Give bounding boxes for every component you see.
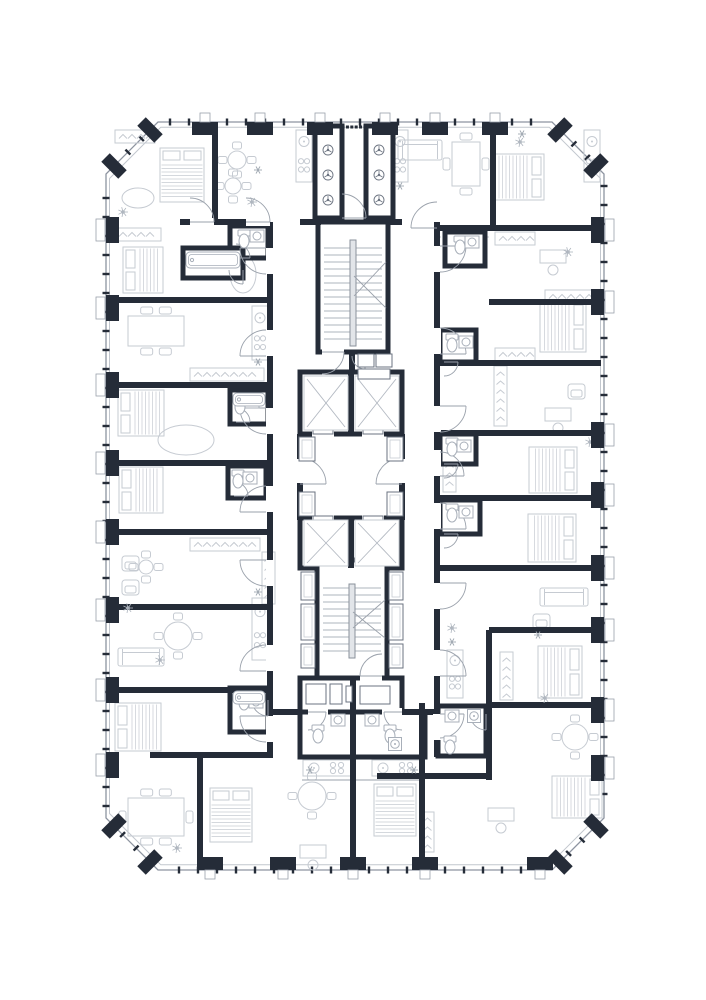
facade-column bbox=[106, 372, 119, 398]
bathtub-symbol bbox=[233, 393, 265, 406]
toilet-symbol bbox=[444, 736, 456, 754]
bed-symbol bbox=[552, 776, 602, 818]
polyline bbox=[119, 135, 127, 139]
facade-column bbox=[372, 122, 398, 135]
mullion-tick bbox=[601, 736, 608, 738]
mullion-tick bbox=[601, 470, 608, 472]
facade-column bbox=[591, 755, 604, 781]
rect bbox=[552, 776, 602, 818]
facade-column bbox=[340, 857, 366, 870]
mullion-tick bbox=[416, 119, 418, 126]
mullion-tick bbox=[601, 204, 608, 206]
balcony-fin bbox=[605, 557, 614, 579]
shaft-riser bbox=[301, 572, 315, 600]
bed-symbol bbox=[540, 302, 586, 352]
mullion-tick bbox=[103, 292, 110, 294]
door-opening bbox=[433, 714, 441, 740]
facade-column bbox=[106, 752, 119, 778]
utility-panel bbox=[346, 686, 352, 702]
rect bbox=[374, 784, 416, 836]
mullion-tick bbox=[368, 867, 370, 874]
balcony-fin bbox=[96, 297, 105, 319]
balcony-fin bbox=[420, 870, 430, 879]
mullion-tick bbox=[103, 254, 110, 256]
door-opening bbox=[433, 583, 441, 609]
mullion-tick bbox=[601, 413, 608, 415]
bed-symbol bbox=[123, 247, 163, 293]
utility-panel bbox=[330, 684, 342, 704]
balcony-fin bbox=[200, 113, 210, 122]
balcony-fin bbox=[535, 870, 545, 879]
elevator-car bbox=[304, 520, 348, 566]
mullion-tick bbox=[283, 119, 285, 126]
mullion-tick bbox=[520, 867, 522, 874]
mullion-tick bbox=[103, 577, 110, 579]
mullion-tick bbox=[463, 867, 465, 874]
door-opening bbox=[360, 674, 382, 682]
mullion-tick bbox=[601, 660, 608, 662]
balcony-fin bbox=[605, 699, 614, 721]
rect bbox=[118, 390, 164, 436]
door-opening bbox=[266, 486, 274, 512]
mullion-tick bbox=[473, 119, 475, 126]
mullion-tick bbox=[601, 394, 608, 396]
elevator-car bbox=[355, 376, 399, 430]
facade-column bbox=[591, 422, 604, 448]
balcony-fin bbox=[490, 113, 500, 122]
facade-column bbox=[591, 697, 604, 723]
ellipse bbox=[239, 234, 249, 248]
circle bbox=[399, 140, 401, 142]
door-opening bbox=[266, 330, 274, 356]
elevator-car bbox=[355, 520, 399, 566]
rect bbox=[123, 247, 163, 293]
stair-rail bbox=[349, 584, 355, 658]
mullion-tick bbox=[601, 337, 608, 339]
bed-symbol bbox=[119, 467, 163, 513]
facade-column bbox=[197, 857, 223, 870]
balcony-fin bbox=[255, 113, 265, 122]
facade-column bbox=[106, 519, 119, 545]
rect bbox=[301, 572, 315, 600]
ellipse bbox=[313, 729, 323, 743]
rect bbox=[389, 644, 403, 668]
mullion-tick bbox=[511, 119, 513, 126]
balcony-fin bbox=[96, 521, 105, 543]
rect bbox=[540, 302, 586, 352]
sink-symbol bbox=[465, 236, 479, 248]
circle bbox=[259, 317, 261, 319]
bed-symbol bbox=[160, 148, 204, 202]
door-opening bbox=[266, 408, 274, 434]
balcony-fin bbox=[96, 679, 105, 701]
mullion-tick bbox=[103, 273, 110, 275]
balcony-fin bbox=[278, 870, 288, 879]
mullion-tick bbox=[601, 451, 608, 453]
ellipse bbox=[445, 740, 455, 754]
rect bbox=[301, 604, 315, 640]
mullion-tick bbox=[235, 867, 237, 874]
mullion-tick bbox=[103, 672, 110, 674]
facade-column bbox=[106, 450, 119, 476]
mullion-tick bbox=[103, 349, 110, 351]
polyline bbox=[128, 135, 136, 139]
mullion-tick bbox=[359, 119, 361, 126]
circle bbox=[259, 611, 261, 613]
facade-column bbox=[591, 482, 604, 508]
toilet-symbol bbox=[446, 334, 458, 352]
mullion-tick bbox=[103, 368, 110, 370]
utility-panel bbox=[376, 354, 392, 367]
ellipse bbox=[455, 240, 465, 254]
wall-enclosure bbox=[366, 126, 393, 218]
wall-enclosure bbox=[315, 126, 342, 218]
door-opening bbox=[433, 503, 441, 529]
balcony-fin bbox=[430, 113, 440, 122]
rect bbox=[299, 492, 315, 516]
mullion-tick bbox=[245, 119, 247, 126]
facade-column bbox=[591, 617, 604, 643]
facade-column bbox=[106, 597, 119, 623]
mullion-tick bbox=[103, 197, 110, 199]
ellipse bbox=[233, 474, 243, 488]
mullion-tick bbox=[601, 679, 608, 681]
mullion-tick bbox=[601, 508, 608, 510]
rect bbox=[494, 154, 544, 200]
rect bbox=[119, 467, 163, 513]
mullion-tick bbox=[601, 527, 608, 529]
mullion-tick bbox=[226, 119, 228, 126]
rect bbox=[160, 148, 204, 202]
floor-plan-canvas bbox=[0, 0, 706, 1000]
door-opening bbox=[433, 328, 441, 354]
stair-rail bbox=[350, 240, 356, 346]
mullion-tick bbox=[601, 261, 608, 263]
facade-column bbox=[270, 857, 296, 870]
facade-column bbox=[307, 122, 333, 135]
mullion-tick bbox=[103, 805, 110, 807]
floor-plan-page bbox=[0, 0, 706, 1000]
mullion-tick bbox=[601, 356, 608, 358]
shaft-riser bbox=[389, 572, 403, 600]
sink-symbol bbox=[459, 336, 473, 348]
balcony-fin bbox=[605, 757, 614, 779]
sink-symbol bbox=[365, 714, 379, 726]
mullion-tick bbox=[330, 867, 332, 874]
mullion-tick bbox=[601, 584, 608, 586]
mullion-tick bbox=[103, 425, 110, 427]
louver-dot bbox=[346, 126, 349, 129]
rect bbox=[538, 646, 582, 698]
facade-column bbox=[482, 122, 508, 135]
toilet-symbol bbox=[446, 438, 458, 456]
door-opening bbox=[433, 450, 441, 476]
bed-symbol bbox=[118, 390, 164, 436]
mullion-tick bbox=[601, 280, 608, 282]
door-opening bbox=[266, 716, 274, 742]
door-opening bbox=[433, 650, 441, 676]
rect bbox=[387, 492, 403, 516]
shaft-riser bbox=[299, 437, 315, 461]
mullion-tick bbox=[103, 444, 110, 446]
sink-symbol bbox=[243, 472, 257, 484]
shaft-riser bbox=[299, 492, 315, 516]
mullion-tick bbox=[482, 867, 484, 874]
mullion-tick bbox=[103, 406, 110, 408]
bed-symbol bbox=[529, 447, 577, 493]
mullion-tick bbox=[103, 786, 110, 788]
bathtub-symbol bbox=[233, 691, 265, 704]
toilet-symbol bbox=[312, 725, 324, 743]
mullion-tick bbox=[254, 867, 256, 874]
mullion-tick bbox=[169, 119, 171, 126]
utility-panel bbox=[358, 369, 390, 379]
mullion-tick bbox=[601, 375, 608, 377]
mullion-tick bbox=[387, 867, 389, 874]
mullion-tick bbox=[103, 501, 110, 503]
toilet-symbol bbox=[454, 236, 466, 254]
facade-column bbox=[106, 217, 119, 243]
mullion-tick bbox=[178, 867, 180, 874]
rect bbox=[387, 437, 403, 461]
shaft-riser bbox=[389, 644, 403, 668]
circle bbox=[394, 743, 396, 745]
ellipse bbox=[447, 338, 457, 352]
mullion-tick bbox=[601, 546, 608, 548]
rect bbox=[301, 644, 315, 668]
mullion-tick bbox=[188, 119, 190, 126]
louver-dot bbox=[350, 126, 353, 129]
ellipse bbox=[447, 442, 457, 456]
facade-column bbox=[106, 295, 119, 321]
ellipse bbox=[447, 508, 457, 522]
utility-panel bbox=[358, 354, 374, 367]
mullion-tick bbox=[103, 748, 110, 750]
mullion-tick bbox=[601, 185, 608, 187]
circle bbox=[382, 767, 384, 769]
mullion-tick bbox=[103, 482, 110, 484]
circle bbox=[454, 660, 456, 662]
sink-symbol bbox=[331, 714, 345, 726]
mullion-tick bbox=[530, 119, 532, 126]
facade-column bbox=[247, 122, 273, 135]
mullion-tick bbox=[103, 710, 110, 712]
balcony-fin bbox=[605, 484, 614, 506]
sink-symbol bbox=[457, 440, 471, 452]
facade-column bbox=[591, 555, 604, 581]
facade-column bbox=[106, 677, 119, 703]
facade-column bbox=[422, 122, 448, 135]
louver-dot bbox=[359, 126, 362, 129]
bed-symbol bbox=[494, 154, 544, 200]
toilet-symbol bbox=[446, 504, 458, 522]
balcony-fin bbox=[380, 113, 390, 122]
mullion-tick bbox=[103, 330, 110, 332]
facade-column bbox=[591, 217, 604, 243]
toilet-symbol bbox=[238, 230, 250, 248]
bed-symbol bbox=[538, 646, 582, 698]
mullion-tick bbox=[406, 867, 408, 874]
louver-dot bbox=[355, 126, 358, 129]
door-opening bbox=[433, 406, 441, 432]
circle bbox=[591, 140, 593, 142]
shaft-riser bbox=[389, 604, 403, 640]
balcony-fin bbox=[96, 754, 105, 776]
door-opening bbox=[433, 246, 441, 272]
bathtub-symbol bbox=[186, 252, 240, 268]
facade-column bbox=[591, 289, 604, 315]
balcony-fin bbox=[348, 870, 358, 879]
sink-symbol bbox=[445, 710, 459, 722]
balcony-fin bbox=[96, 599, 105, 621]
circle bbox=[313, 767, 315, 769]
utility-panel bbox=[360, 686, 390, 704]
bed-symbol bbox=[374, 784, 416, 836]
balcony-fin bbox=[605, 219, 614, 241]
bed-symbol bbox=[210, 788, 252, 842]
facade-column bbox=[192, 122, 218, 135]
door-opening bbox=[266, 248, 274, 274]
rect bbox=[389, 572, 403, 600]
door-opening bbox=[266, 560, 274, 586]
rect bbox=[389, 604, 403, 640]
balcony-fin bbox=[605, 291, 614, 313]
balcony-fin bbox=[605, 619, 614, 641]
shaft-riser bbox=[387, 492, 403, 516]
toilet-symbol bbox=[232, 470, 244, 488]
mullion-tick bbox=[501, 867, 503, 874]
mullion-tick bbox=[103, 558, 110, 560]
mullion-tick bbox=[601, 318, 608, 320]
bed-symbol bbox=[528, 514, 576, 562]
mullion-tick bbox=[454, 119, 456, 126]
mullion-tick bbox=[302, 119, 304, 126]
mullion-tick bbox=[444, 867, 446, 874]
rect bbox=[210, 788, 252, 842]
door-opening bbox=[266, 645, 274, 671]
washer-symbol bbox=[468, 710, 481, 723]
balcony-fin bbox=[96, 452, 105, 474]
facade-column bbox=[412, 857, 438, 870]
balcony-fin bbox=[96, 374, 105, 396]
balcony-fin bbox=[205, 870, 215, 879]
balcony-fin bbox=[315, 113, 325, 122]
bed-symbol bbox=[115, 703, 161, 751]
sink-symbol bbox=[459, 506, 473, 518]
balcony-fin bbox=[96, 219, 105, 241]
sink-symbol bbox=[250, 230, 264, 242]
circle bbox=[303, 140, 305, 142]
balcony-fin bbox=[605, 424, 614, 446]
mullion-tick bbox=[103, 729, 110, 731]
circle bbox=[473, 715, 475, 717]
mullion-tick bbox=[103, 634, 110, 636]
rect bbox=[299, 437, 315, 461]
shaft-riser bbox=[301, 644, 315, 668]
mullion-tick bbox=[601, 603, 608, 605]
shaft-riser bbox=[301, 604, 315, 640]
washer-symbol bbox=[389, 738, 402, 751]
mullion-tick bbox=[103, 653, 110, 655]
shaft-riser bbox=[387, 437, 403, 461]
rect bbox=[115, 703, 161, 751]
elevator-car bbox=[304, 376, 348, 430]
utility-panel bbox=[306, 684, 326, 704]
